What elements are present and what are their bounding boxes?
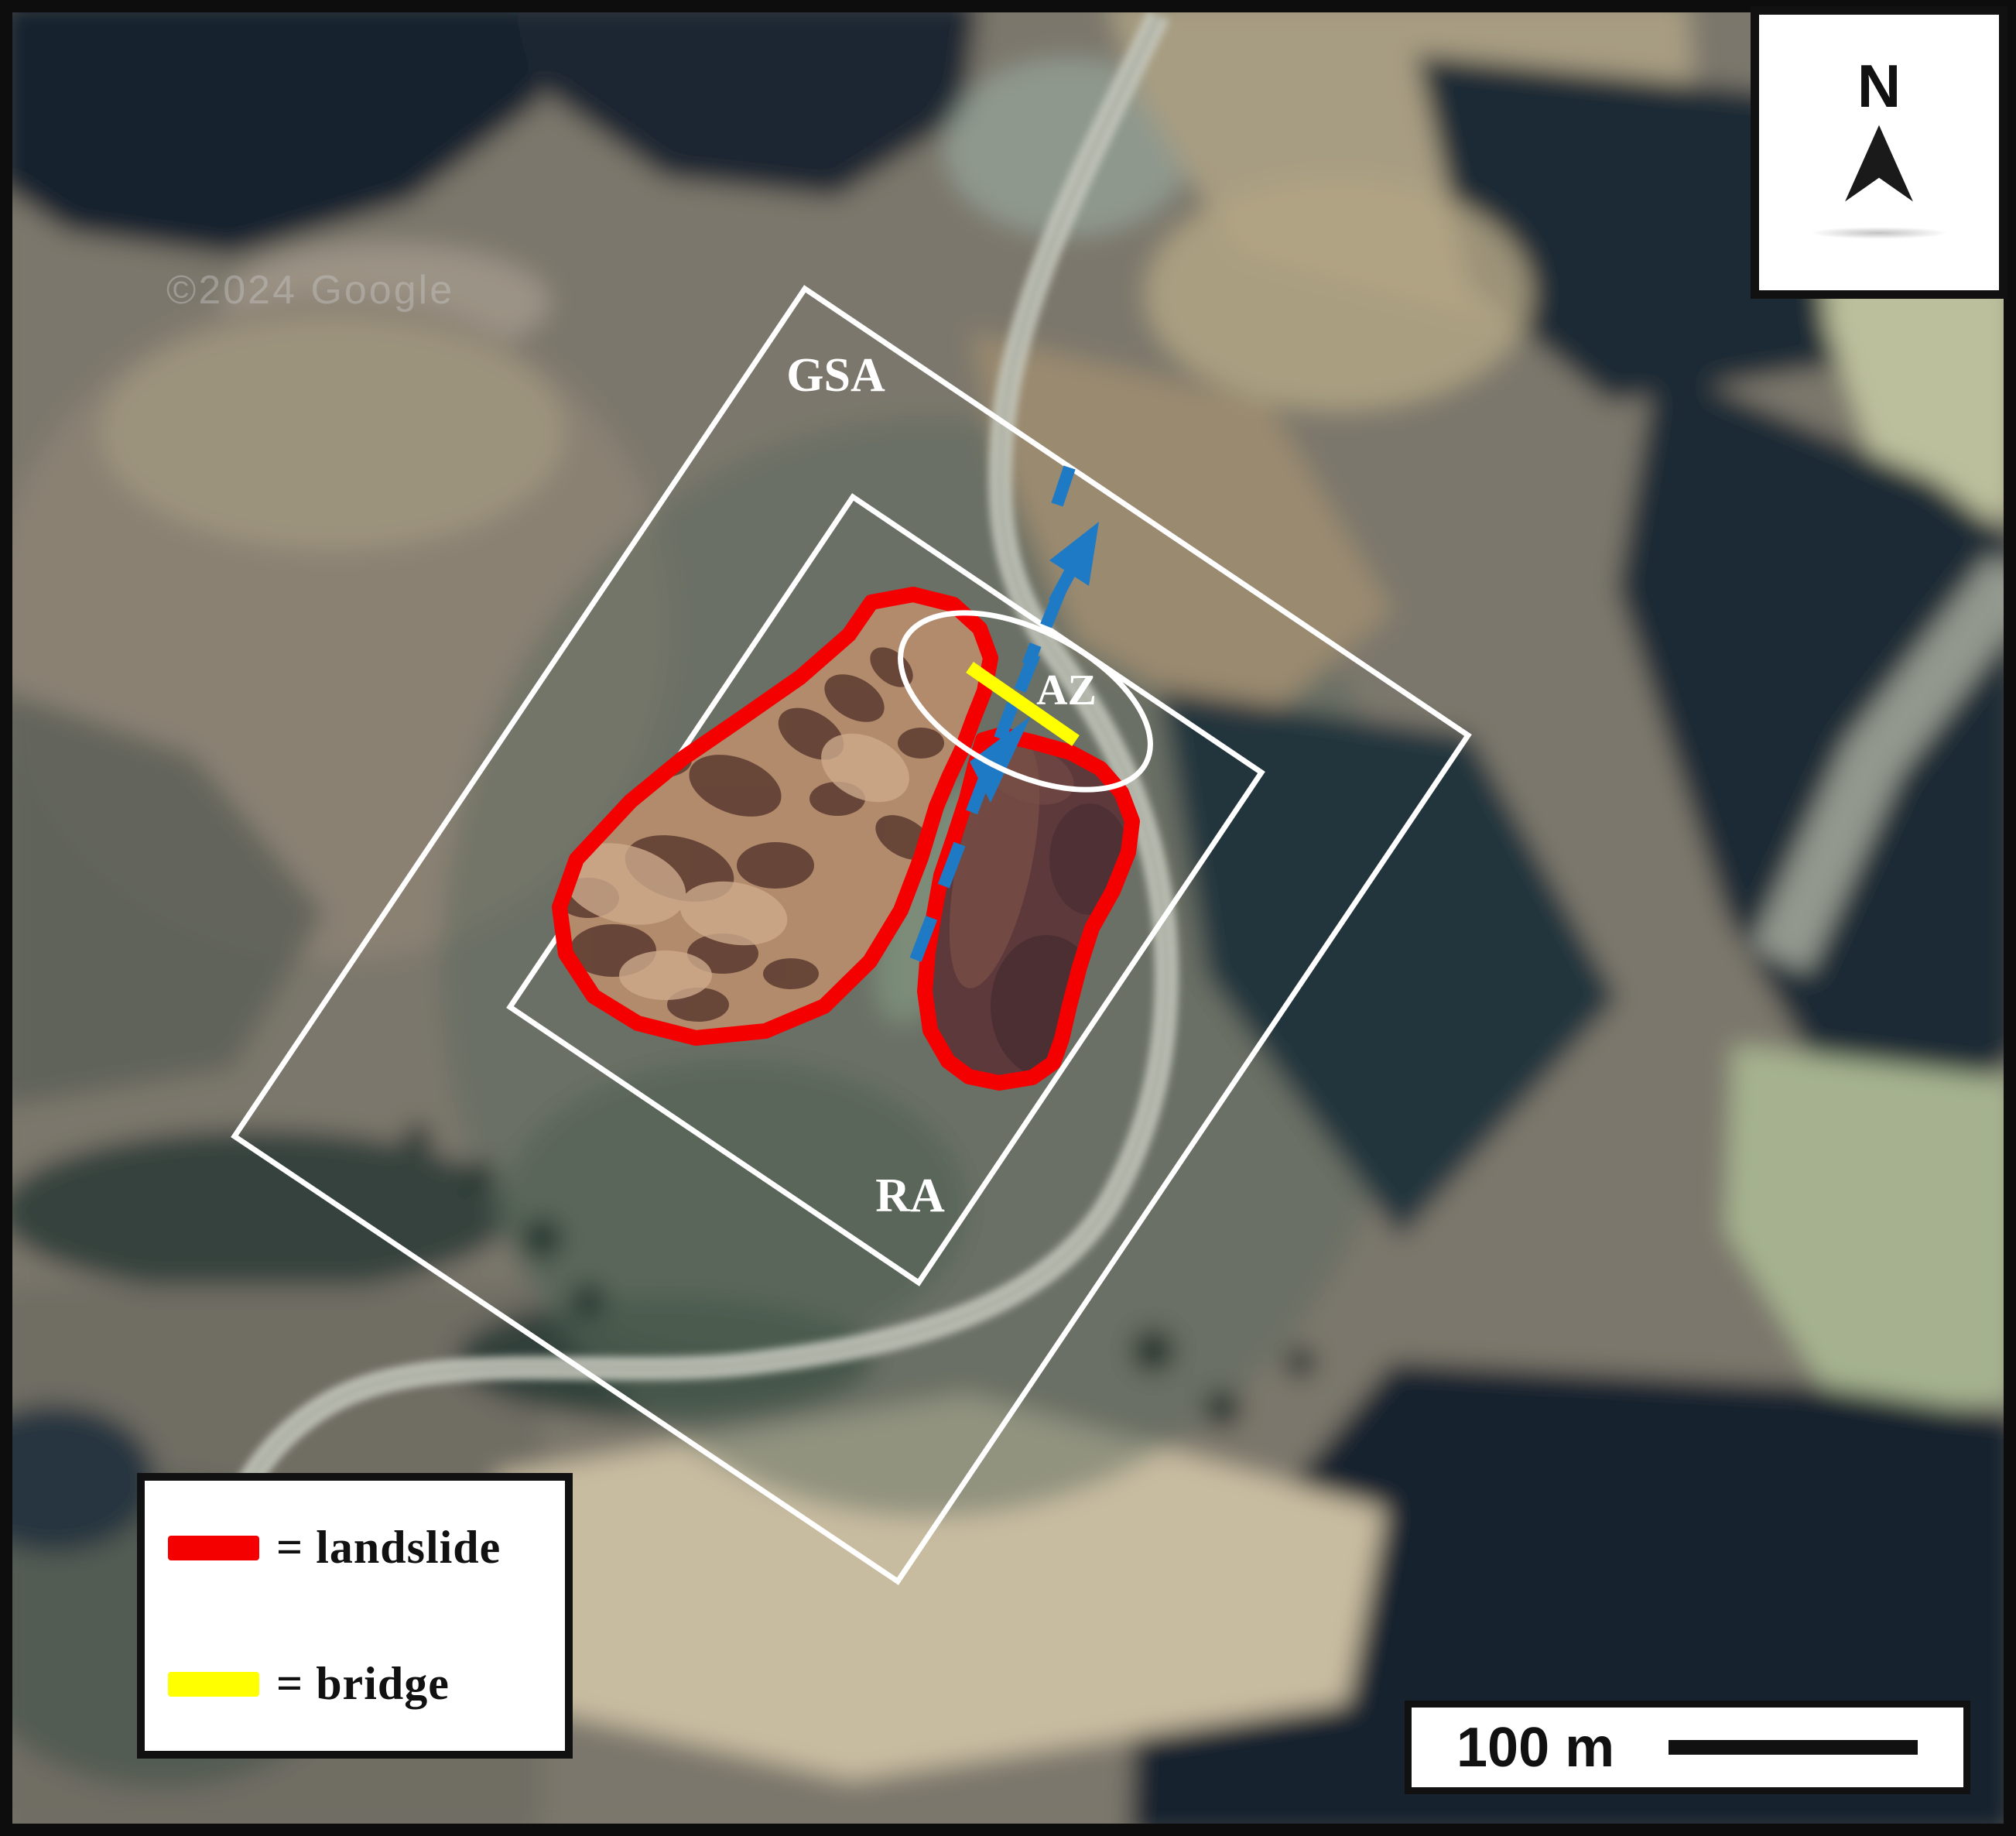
scale-bar: 100 m bbox=[1405, 1701, 1970, 1794]
north-arrow-shadow bbox=[1809, 227, 1949, 239]
north-label: N bbox=[1857, 63, 1901, 109]
bridge-swatch-icon bbox=[168, 1672, 259, 1697]
scale-label: 100 m bbox=[1456, 1716, 1614, 1779]
north-indicator: N bbox=[1751, 6, 2007, 299]
north-arrow-icon bbox=[1836, 120, 1922, 207]
landslide-map-figure: ©2024 Google GSA RA AZ N = landslide = b… bbox=[0, 0, 2016, 1836]
legend-label-landslide: = landslide bbox=[276, 1521, 501, 1574]
map-legend: = landslide = bridge bbox=[137, 1473, 573, 1759]
scale-bar-line bbox=[1669, 1740, 1918, 1755]
landslide-swatch-icon bbox=[168, 1536, 259, 1560]
legend-item-landslide: = landslide bbox=[168, 1521, 501, 1574]
label-az: AZ bbox=[1036, 666, 1097, 714]
legend-item-bridge: = bridge bbox=[168, 1657, 450, 1711]
legend-label-bridge: = bridge bbox=[276, 1657, 450, 1711]
label-ra: RA bbox=[875, 1170, 945, 1222]
label-gsa: GSA bbox=[786, 349, 885, 402]
google-watermark: ©2024 Google bbox=[166, 268, 454, 313]
